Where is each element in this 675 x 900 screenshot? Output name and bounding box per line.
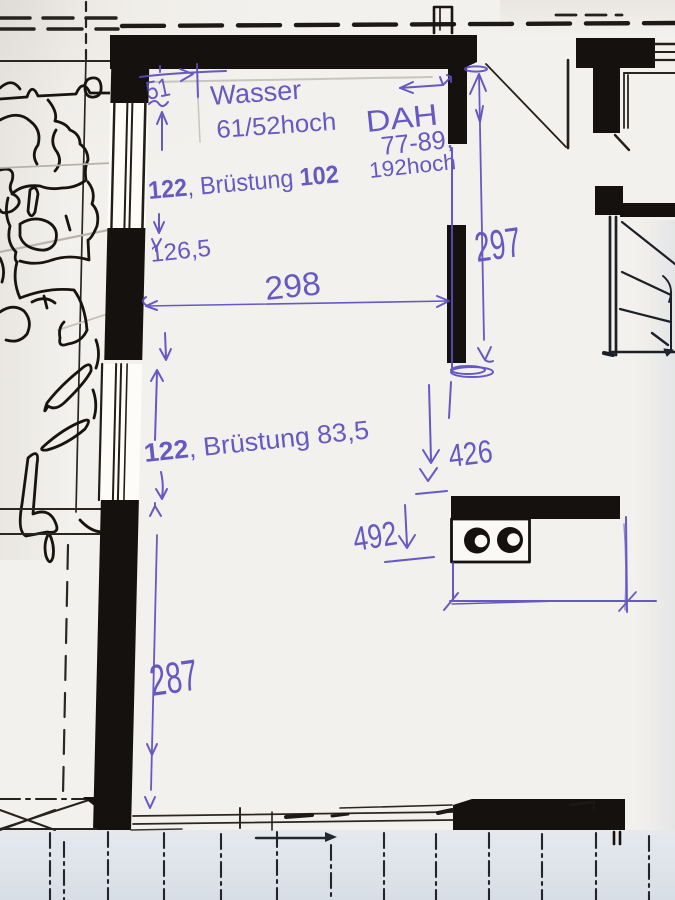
svg-text:492: 492 <box>350 514 399 558</box>
svg-text:Wasser: Wasser <box>209 75 302 111</box>
svg-text:426: 426 <box>446 433 494 474</box>
svg-text:287: 287 <box>147 651 201 706</box>
svg-text:297: 297 <box>472 218 524 271</box>
svg-text:298: 298 <box>263 264 323 307</box>
